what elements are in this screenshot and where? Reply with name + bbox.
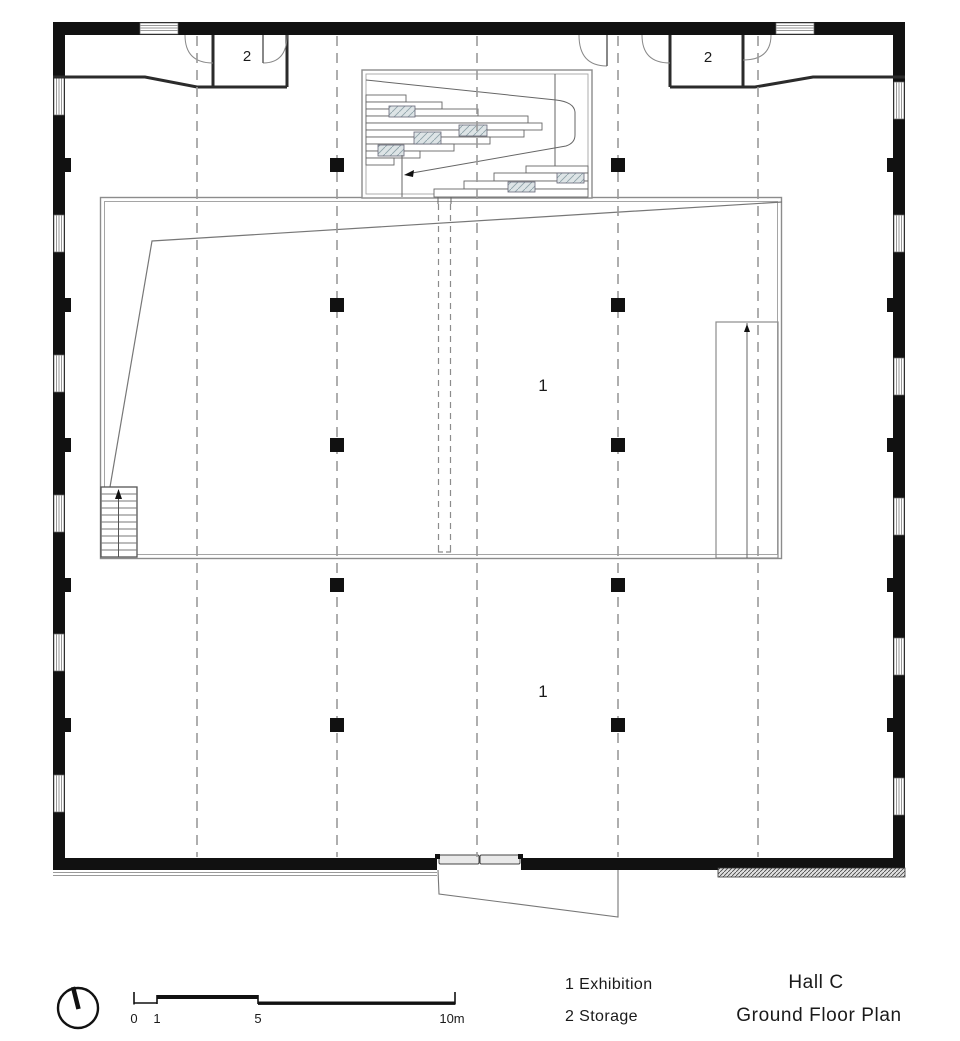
drawing-title-plan: Ground Floor Plan xyxy=(736,1005,901,1026)
scale-tick-1: 1 xyxy=(153,1011,160,1026)
overhead-edge-dashed xyxy=(439,204,451,552)
legend: 1 Exhibition 2 Storage xyxy=(565,976,653,1025)
scale-tick-5: 5 xyxy=(254,1011,261,1026)
floor-plan-drawing: 2 2 1 1 0 1 5 10m 1 Exhibition 2 Storage… xyxy=(0,0,960,1041)
scale-tick-10m: 10m xyxy=(439,1011,464,1026)
storage-right-label: 2 xyxy=(704,49,712,66)
scale-bar: 0 1 5 10m xyxy=(130,992,464,1026)
side-ramp xyxy=(716,322,778,558)
legend-item-exhibition: 1 Exhibition xyxy=(565,976,653,993)
title-block: Hall C Ground Floor Plan xyxy=(736,972,901,1026)
drawing-title-hall: Hall C xyxy=(788,972,843,993)
wall-columns xyxy=(65,158,893,732)
north-needle-icon xyxy=(73,987,79,1009)
exhibition-upper-label: 1 xyxy=(538,376,547,395)
entrance-door-leaf xyxy=(439,855,479,864)
entrance-door-leaf xyxy=(480,855,520,864)
exhibition-hall xyxy=(101,198,783,559)
exhibition-lower-label: 1 xyxy=(538,682,547,701)
legend-item-storage: 2 Storage xyxy=(565,1008,638,1025)
floor-plan-sheet: 2 2 1 1 0 1 5 10m 1 Exhibition 2 Storage… xyxy=(0,0,960,1041)
exterior-hatch-strip xyxy=(718,868,905,877)
door-swing-arcs xyxy=(185,35,771,66)
hall-stair xyxy=(101,487,137,557)
scale-tick-0: 0 xyxy=(130,1011,137,1026)
north-indicator xyxy=(58,987,98,1028)
grid-lines xyxy=(197,36,758,857)
storage-left-label: 2 xyxy=(243,48,251,65)
entrance-ramp xyxy=(438,870,618,917)
